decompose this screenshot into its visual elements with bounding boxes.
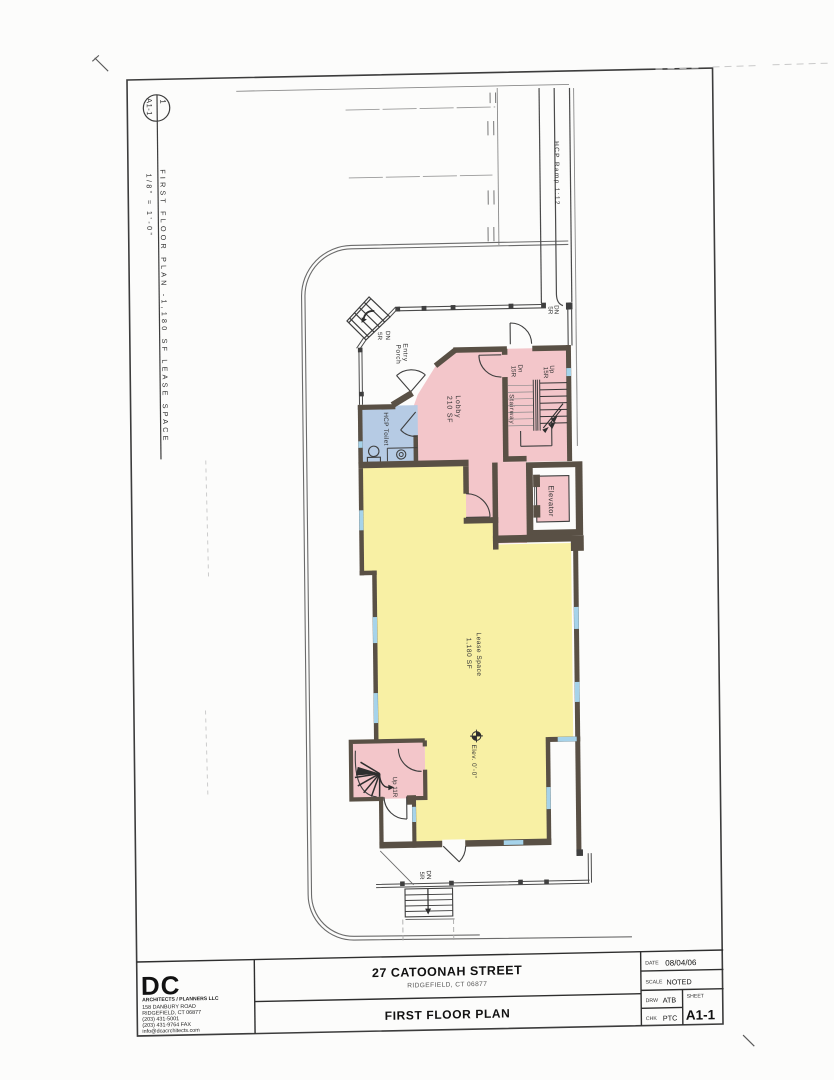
svg-text:Stairway: Stairway (508, 394, 515, 424)
svg-text:A1-1: A1-1 (145, 98, 154, 116)
svg-text:RIDGEFIELD, CT 06877: RIDGEFIELD, CT 06877 (407, 981, 487, 990)
svg-text:1/8” = 1’-0”: 1/8” = 1’-0” (145, 173, 155, 237)
svg-text:5R: 5R (376, 332, 383, 341)
svg-text:NOTED: NOTED (666, 977, 691, 987)
svg-text:SCALE: SCALE (645, 979, 663, 985)
svg-text:Up 11R: Up 11R (391, 777, 398, 798)
svg-text:ARCHITECTS / PLANNERS LLC: ARCHITECTS / PLANNERS LLC (142, 996, 219, 1004)
svg-text:Elevator: Elevator (547, 485, 556, 517)
svg-text:1,180 SF: 1,180 SF (465, 638, 472, 670)
svg-text:08/04/06: 08/04/06 (665, 958, 697, 968)
svg-text:PTC: PTC (663, 1013, 677, 1022)
svg-text:DN: DN (384, 331, 391, 340)
svg-text:DATE: DATE (645, 960, 659, 966)
svg-text:SHEET: SHEET (687, 993, 705, 999)
svg-text:27 CATOONAH STREET: 27 CATOONAH STREET (372, 963, 522, 980)
svg-text:DRW: DRW (646, 998, 658, 1004)
svg-text:Entry: Entry (401, 343, 408, 362)
svg-text:15R: 15R (510, 366, 517, 378)
svg-text:5R: 5R (546, 306, 553, 315)
svg-text:210 SF: 210 SF (445, 396, 452, 424)
svg-text:15R: 15R (542, 367, 549, 379)
svg-text:A1-1: A1-1 (686, 1007, 716, 1023)
svg-text:Porch: Porch (394, 344, 401, 364)
svg-text:CHK: CHK (646, 1016, 658, 1022)
svg-text:ATB: ATB (663, 995, 677, 1004)
svg-text:HCP Ramp 1:12: HCP Ramp 1:12 (553, 141, 561, 206)
svg-text:1: 1 (158, 99, 167, 104)
svg-text:FIRST FLOOR PLAN: FIRST FLOOR PLAN (385, 1006, 511, 1023)
svg-text:Lease Space: Lease Space (475, 632, 482, 676)
svg-text:HCP Toilet: HCP Toilet (382, 412, 389, 446)
svg-text:Elev. 0’-0”: Elev. 0’-0” (470, 744, 477, 778)
svg-text:info@dcacrchitects.com: info@dcacrchitects.com (142, 1028, 200, 1035)
svg-text:5R: 5R (418, 872, 425, 881)
svg-text:Lobby: Lobby (454, 395, 461, 418)
